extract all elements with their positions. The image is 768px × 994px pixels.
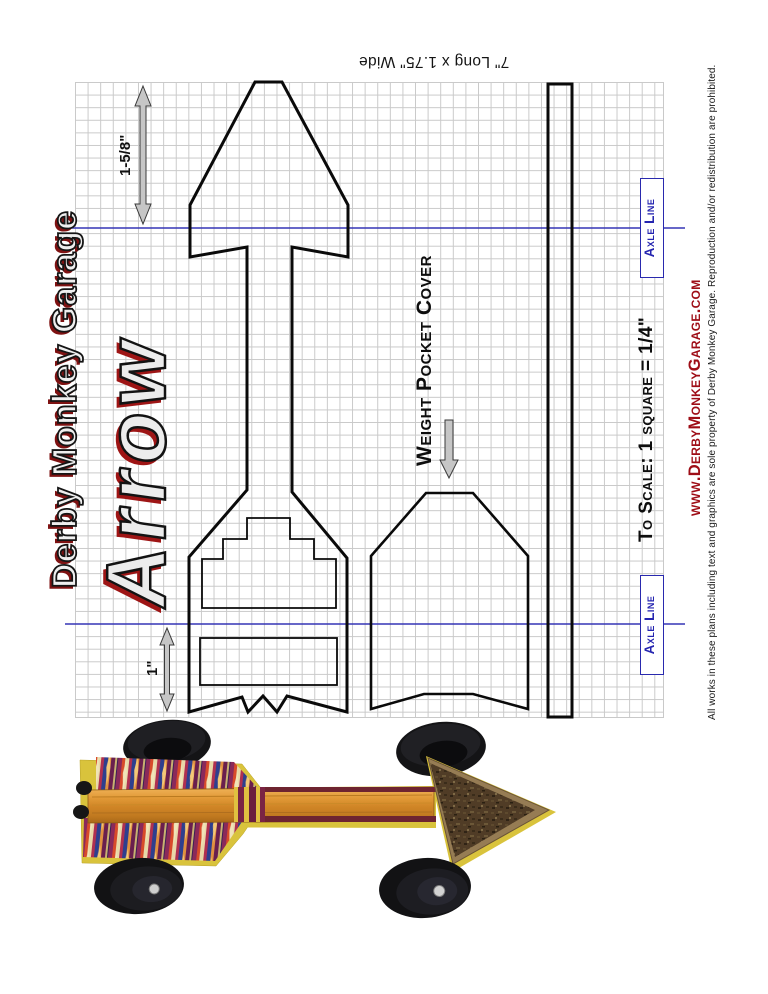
weight-pocket-step-outline (202, 518, 336, 608)
head-width-dimension-label: 1-5/8" (117, 135, 134, 176)
model-title: Arrow (88, 327, 185, 613)
nock-knob (76, 781, 92, 795)
derby-car-plan-page: 7" Long x 1.75" Wide Derby Monkey Garage… (0, 0, 768, 994)
side-profile-strip (548, 84, 572, 717)
rear-axle-line-label: Axle Line (642, 579, 657, 671)
arrow-body-outline (189, 82, 348, 712)
tail-width-arrow (160, 628, 174, 711)
nock-knob (73, 805, 89, 819)
copyright-notice: All works in these plans including text … (707, 65, 718, 720)
front-axle-line-label: Axle Line (642, 182, 657, 274)
weight-pocket-rect (200, 638, 337, 685)
website-link: www.DerbyMonkeyGarage.com (686, 280, 705, 517)
overall-size-note: 7" Long x 1.75" Wide (318, 52, 550, 70)
brand-title: Derby Monkey Garage (46, 210, 85, 588)
car-template-top-view (189, 82, 348, 712)
front-axle-line-label-box: Axle Line (640, 178, 664, 278)
cover-pointer-arrow (440, 420, 458, 478)
weight-pocket-cover-label: Weight Pocket Cover (413, 255, 437, 466)
weight-pocket-cover-outline (371, 493, 528, 709)
rear-axle-line-label-box: Axle Line (640, 575, 664, 675)
head-width-arrow (135, 86, 151, 224)
tail-width-dimension-label: 1" (144, 661, 161, 676)
car-photo (73, 716, 556, 922)
scale-note: To Scale: 1 square = 1/4" (636, 317, 658, 542)
